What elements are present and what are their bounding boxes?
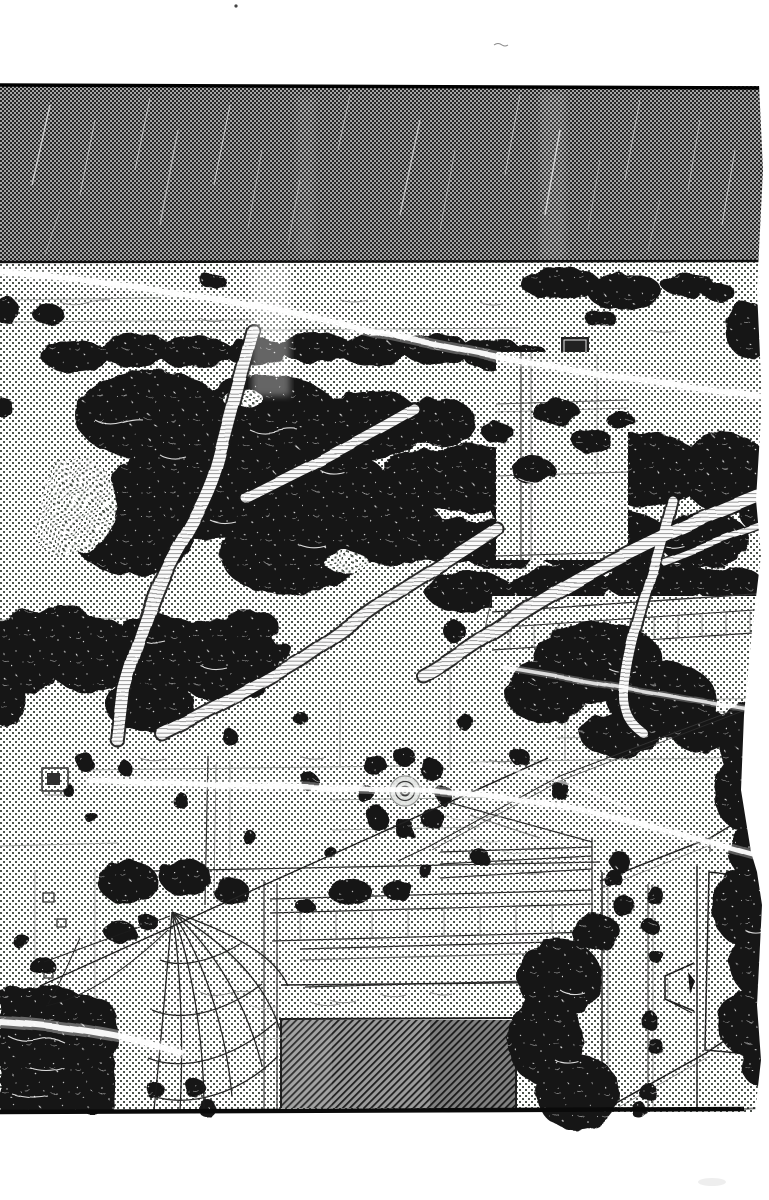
manga-page [0,0,769,1200]
big-window-zone [496,352,628,560]
panel-artwork [0,0,769,1200]
pale-light-band [252,264,290,396]
roof-bottom-line [0,261,766,262]
corner-shadow-mass [0,986,118,1113]
roof-band [0,85,766,262]
